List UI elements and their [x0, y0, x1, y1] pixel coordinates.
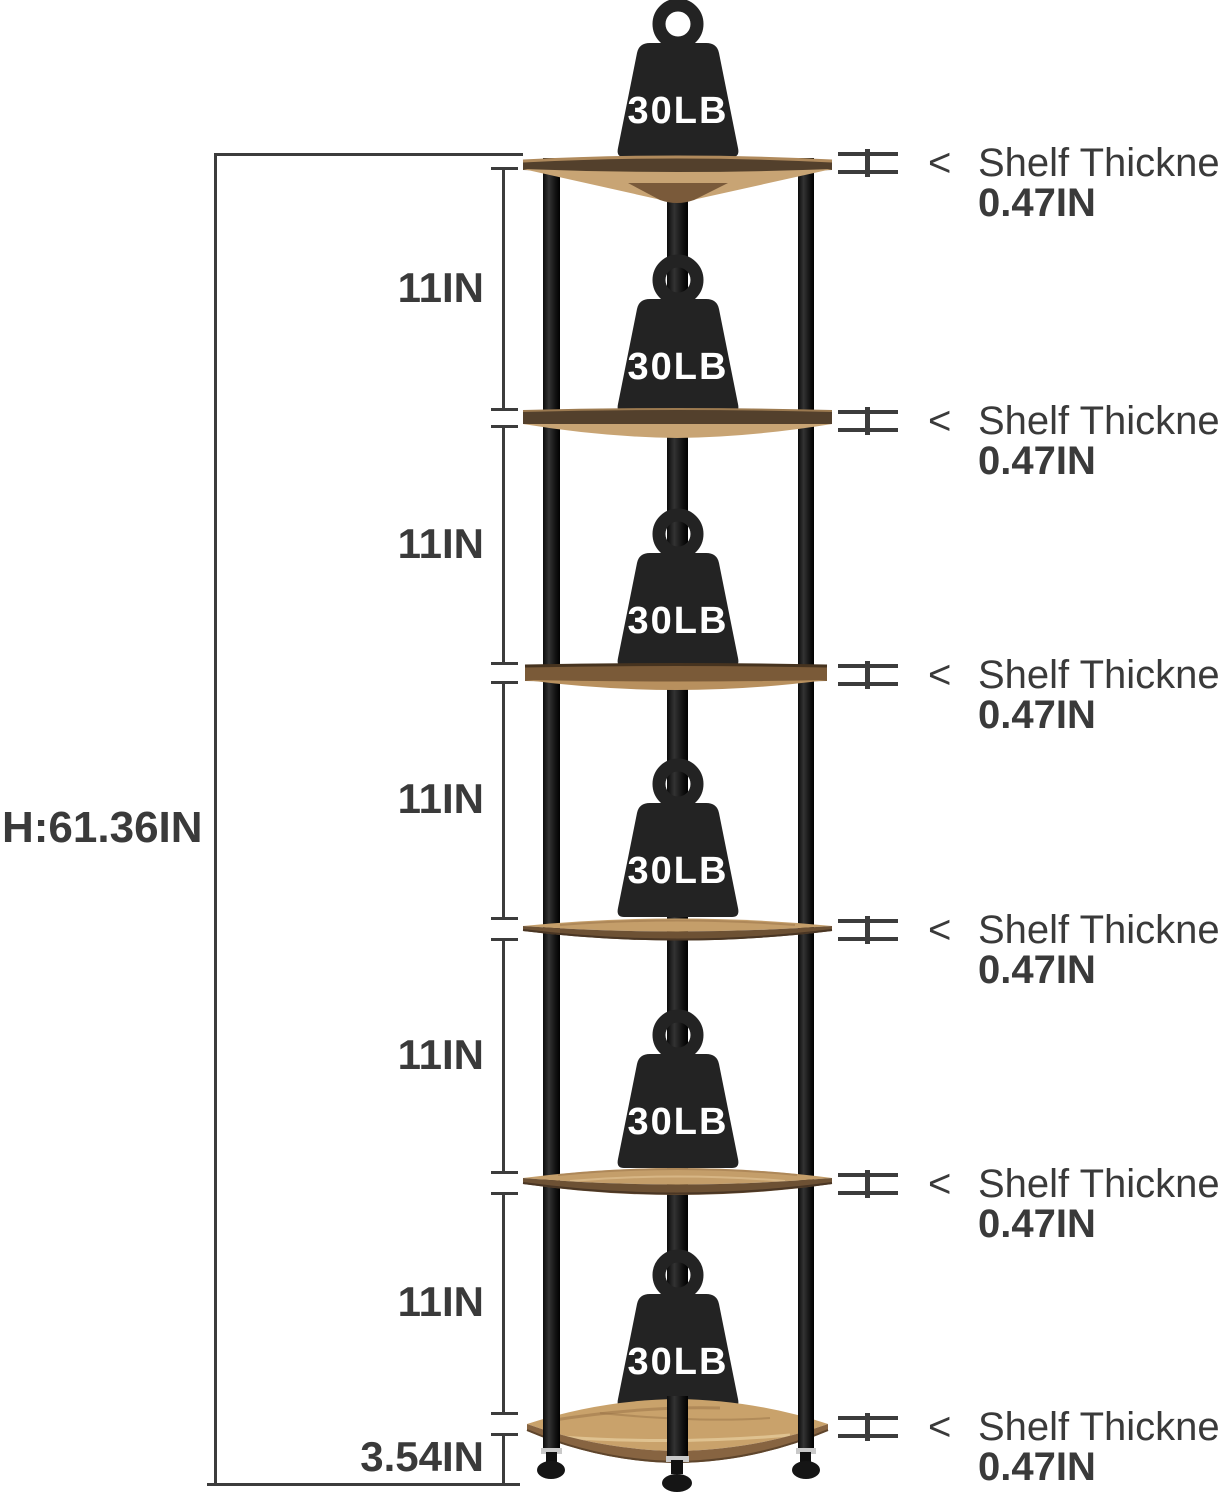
shelf-gap-label: 11IN — [0, 1033, 484, 1077]
shelf-thickness-value: 0.47IN — [978, 1203, 1220, 1245]
bottom-gap-label: 3.54IN — [0, 1435, 484, 1479]
dimension-tick — [491, 681, 518, 684]
shelf-thickness-marker-icon — [838, 1173, 898, 1195]
gap-dimension-line — [502, 428, 505, 662]
left-arrow-icon: < — [928, 1408, 978, 1446]
corner-shelf-illustration: 30LB — [0, 0, 1223, 1500]
shelf-thickness-marker-icon — [838, 410, 898, 432]
shelf-thickness-title: Shelf Thickne — [978, 141, 1220, 185]
height-dimension-top-tick — [214, 153, 523, 156]
dimension-tick — [491, 408, 518, 411]
shelf-thickness-value: 0.47IN — [978, 182, 1220, 224]
shelf-thickness-value: 0.47IN — [978, 949, 1220, 991]
shelf-thickness-value: 0.47IN — [978, 440, 1220, 482]
shelf-board-1 — [523, 157, 832, 203]
center-leg — [667, 1396, 688, 1458]
left-leg — [543, 158, 560, 1398]
right-leg — [798, 158, 814, 1398]
shelf-gap-label: 11IN — [0, 266, 484, 310]
shelf-thickness-title: Shelf Thickne — [978, 399, 1220, 443]
shelf-thickness-title: Shelf Thickne — [978, 908, 1220, 952]
shelf-thickness-marker-icon — [838, 1416, 898, 1438]
shelf-thickness-title: Shelf Thickne — [978, 1162, 1220, 1206]
dimension-tick — [491, 662, 518, 665]
shelf-thickness-label: <Shelf Thickne 0.47IN — [928, 402, 1220, 482]
gap-dimension-line — [502, 684, 505, 917]
shelf-thickness-label: <Shelf Thickne 0.47IN — [928, 1165, 1220, 1245]
dimension-tick — [491, 425, 518, 428]
shelf-thickness-marker-icon — [838, 152, 898, 174]
gap-dimension-line — [502, 170, 505, 408]
shelf-thickness-label: <Shelf Thickne 0.47IN — [928, 1408, 1220, 1488]
gap-dimension-line — [502, 941, 505, 1171]
left-arrow-icon: < — [928, 402, 978, 440]
shelf-thickness-marker-icon — [838, 664, 898, 686]
shelf-thickness-title: Shelf Thickne — [978, 1405, 1220, 1449]
shelf-thickness-label: <Shelf Thickne 0.47IN — [928, 656, 1220, 736]
shelf-gap-label: 11IN — [0, 777, 484, 821]
shelf-thickness-label: <Shelf Thickne 0.47IN — [928, 911, 1220, 991]
shelf-gap-label: 11IN — [0, 1280, 484, 1324]
left-arrow-icon: < — [928, 656, 978, 694]
shelf-thickness-label: <Shelf Thickne 0.47IN — [928, 144, 1220, 224]
dimension-tick — [491, 917, 518, 920]
dimension-tick — [491, 1171, 518, 1174]
shelf-board-4 — [523, 919, 832, 941]
right-leg — [798, 1396, 814, 1450]
shelf-gap-label: 11IN — [0, 522, 484, 566]
shelf-board-2 — [523, 409, 832, 438]
left-arrow-icon: < — [928, 911, 978, 949]
dimension-tick — [491, 1433, 518, 1436]
adjustable-foot — [792, 1448, 820, 1479]
shelf-dimension-diagram: 30LB — [0, 0, 1223, 1500]
left-arrow-icon: < — [928, 144, 978, 182]
bottom-gap-dimension-line — [502, 1436, 505, 1483]
adjustable-foot — [662, 1456, 692, 1492]
shelf-board-3 — [525, 665, 827, 691]
shelf-thickness-title: Shelf Thickne — [978, 653, 1220, 697]
shelf-thickness-marker-icon — [838, 919, 898, 941]
shelf-board-5 — [523, 1168, 832, 1195]
shelf-thickness-value: 0.47IN — [978, 694, 1220, 736]
left-arrow-icon: < — [928, 1165, 978, 1203]
dimension-tick — [491, 167, 518, 170]
dimension-tick — [491, 1192, 518, 1195]
gap-dimension-line — [502, 1195, 505, 1412]
height-dimension-bottom-tick — [207, 1483, 520, 1486]
dimension-tick — [491, 1412, 518, 1415]
adjustable-foot — [537, 1448, 565, 1479]
shelf-thickness-value: 0.47IN — [978, 1446, 1220, 1488]
weight-30lb — [618, 5, 739, 157]
dimension-tick — [491, 938, 518, 941]
left-leg — [543, 1396, 560, 1450]
